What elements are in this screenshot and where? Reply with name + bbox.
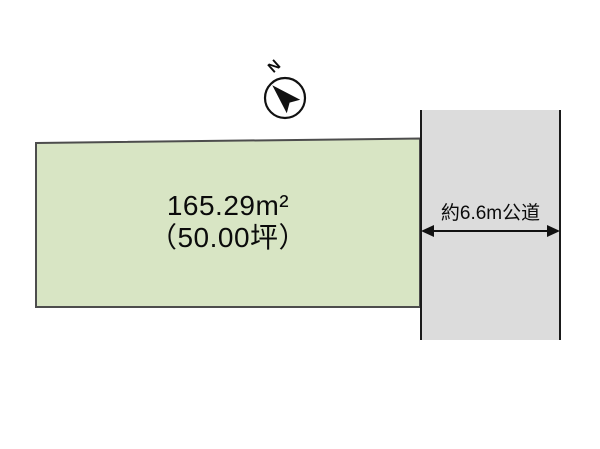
area-label: 165.29m²	[36, 190, 420, 222]
land-plot-diagram: N 165.29m² （50.00坪） 約6.6m公道	[0, 0, 600, 449]
compass-icon	[265, 78, 305, 118]
road-label: 約6.6m公道	[421, 202, 560, 226]
tsubo-label: （50.00坪）	[36, 222, 420, 254]
parcel-label-block: 165.29m² （50.00坪）	[36, 190, 420, 254]
